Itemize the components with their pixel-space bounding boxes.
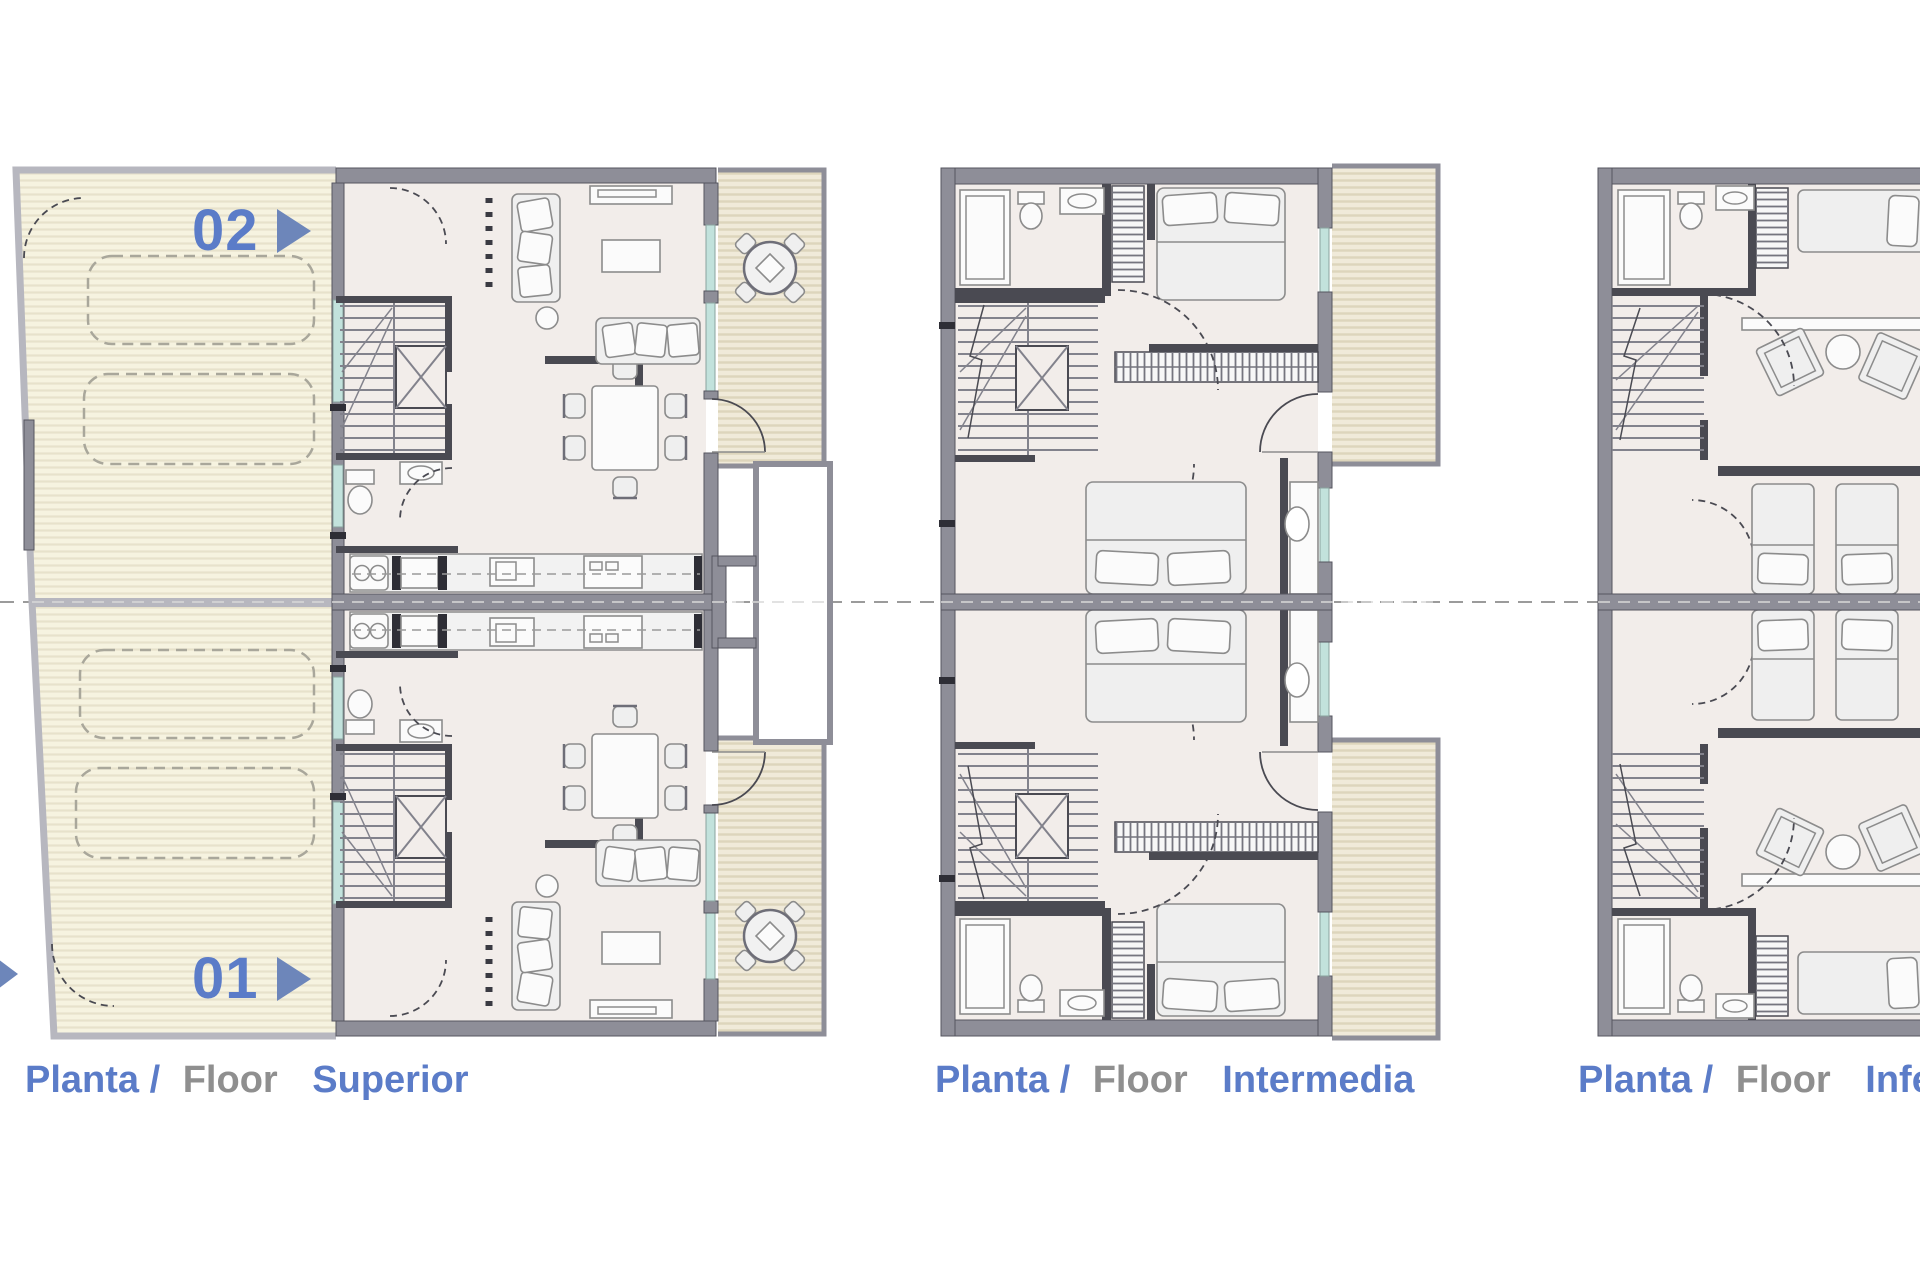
right-arrow-icon bbox=[277, 957, 311, 1001]
caption-planta: Planta / bbox=[25, 1059, 160, 1101]
unit-label-01: 01 bbox=[192, 950, 311, 1008]
caption-floor-intermedia: Planta / Floor Intermedia bbox=[935, 1058, 1414, 1104]
plan-floor-intermedia bbox=[939, 166, 1438, 1038]
unit-number: 01 bbox=[192, 950, 259, 1008]
caption-level: Intermedia bbox=[1222, 1059, 1414, 1101]
plan-floor-superior bbox=[16, 168, 830, 1036]
caption-planta: Planta / bbox=[935, 1059, 1070, 1101]
unit-number: 02 bbox=[192, 202, 259, 260]
caption-floor-superior: Planta / Floor Superior bbox=[25, 1058, 469, 1104]
party-wall bbox=[941, 594, 1332, 610]
entry-court bbox=[756, 464, 830, 742]
caption-floor: Floor bbox=[183, 1059, 278, 1101]
floor-plan-sheet: 02 01 Planta / Floor Superior Planta / F… bbox=[0, 0, 1920, 1280]
caption-floor: Floor bbox=[1093, 1059, 1188, 1101]
right-arrow-icon bbox=[277, 209, 311, 253]
unit-label-02: 02 bbox=[192, 202, 311, 260]
caption-planta: Planta / bbox=[1578, 1059, 1713, 1101]
garage bbox=[16, 170, 336, 1036]
caption-floor: Floor bbox=[1736, 1059, 1831, 1101]
plan-floor-inferior bbox=[1598, 168, 1920, 1036]
caption-level: Inferior bbox=[1865, 1059, 1920, 1101]
edge-arrow-icon bbox=[0, 950, 18, 998]
caption-level: Superior bbox=[312, 1059, 468, 1101]
caption-floor-inferior: Planta / Floor Inferior bbox=[1578, 1058, 1920, 1104]
